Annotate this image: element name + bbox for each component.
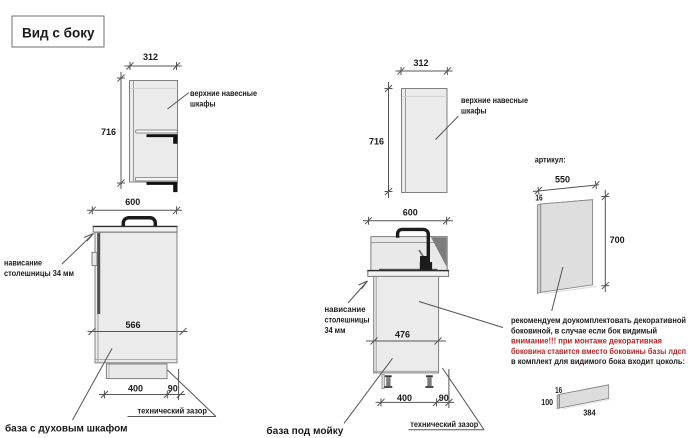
svg-text:база под мойку: база под мойку <box>266 425 343 437</box>
svg-text:700: 700 <box>610 235 625 245</box>
svg-text:476: 476 <box>395 330 410 340</box>
svg-text:боковиной, в случае если бок в: боковиной, в случае если бок видимый <box>511 326 657 335</box>
svg-text:16: 16 <box>555 386 562 395</box>
svg-text:312: 312 <box>143 52 158 62</box>
svg-text:600: 600 <box>403 207 418 217</box>
svg-text:внимание!!! при монтаже декора: внимание!!! при монтаже декоративная <box>511 337 662 346</box>
svg-text:верхние навесные: верхние навесные <box>190 89 257 98</box>
svg-text:400: 400 <box>397 393 412 403</box>
svg-text:боковина ставится вместо боков: боковина ставится вместо боковины базы л… <box>511 347 686 356</box>
svg-text:шкафы: шкафы <box>461 107 487 116</box>
svg-text:716: 716 <box>101 127 116 137</box>
svg-text:столешницы: столешницы <box>325 316 370 325</box>
svg-text:технический зазор: технический зазор <box>138 407 208 416</box>
svg-text:в комплект для видимого бока в: в комплект для видимого бока входит цоко… <box>511 357 685 366</box>
svg-text:566: 566 <box>126 320 141 330</box>
svg-text:16: 16 <box>535 194 543 203</box>
svg-text:Вид с боку: Вид с боку <box>22 25 95 41</box>
svg-text:шкафы: шкафы <box>190 100 216 109</box>
svg-text:нависание: нависание <box>325 305 367 314</box>
svg-text:600: 600 <box>125 197 140 207</box>
svg-text:100: 100 <box>541 397 553 407</box>
svg-text:400: 400 <box>128 384 143 394</box>
svg-text:технический зазор: технический зазор <box>410 420 478 429</box>
svg-text:312: 312 <box>414 58 429 68</box>
svg-text:рекомендуем доукомплектовать д: рекомендуем доукомплектовать декоративно… <box>511 316 686 325</box>
svg-text:90: 90 <box>168 384 178 394</box>
svg-text:нависание: нависание <box>4 259 42 268</box>
svg-text:артикул:: артикул: <box>535 156 566 165</box>
svg-text:716: 716 <box>369 137 384 147</box>
svg-text:384: 384 <box>583 408 596 418</box>
svg-text:34 мм: 34 мм <box>325 326 346 335</box>
svg-text:550: 550 <box>555 175 570 185</box>
svg-text:столешницы 34 мм: столешницы 34 мм <box>4 269 74 278</box>
svg-text:база с духовым шкафом: база с духовым шкафом <box>5 423 128 435</box>
svg-text:верхние навесные: верхние навесные <box>461 96 528 105</box>
svg-text:90: 90 <box>439 393 449 403</box>
